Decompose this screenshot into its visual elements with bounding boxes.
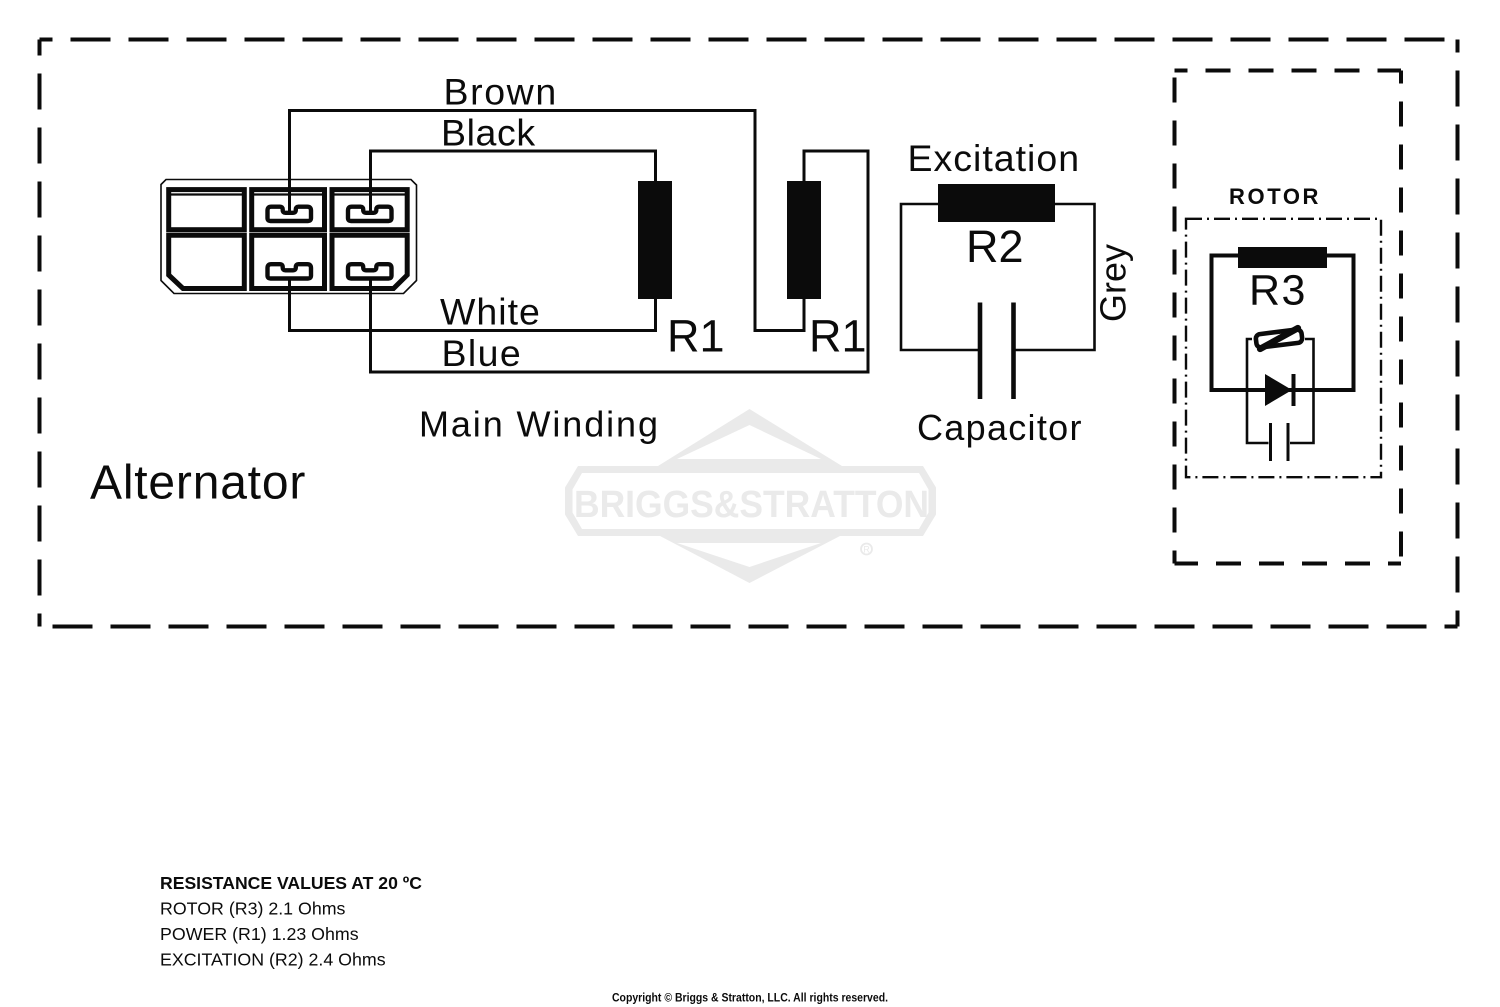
svg-text:Main Winding: Main Winding: [419, 403, 660, 444]
svg-text:Capacitor: Capacitor: [917, 407, 1083, 448]
svg-text:ROTOR (R3) 2.1 Ohms: ROTOR (R3) 2.1 Ohms: [160, 899, 346, 919]
svg-text:R3: R3: [1249, 267, 1307, 315]
svg-text:R1: R1: [667, 311, 725, 362]
svg-text:Alternator: Alternator: [90, 457, 306, 510]
svg-text:ROTOR: ROTOR: [1229, 184, 1321, 209]
svg-text:Grey: Grey: [1093, 244, 1134, 322]
svg-text:BRIGGS&STRATTON: BRIGGS&STRATTON: [574, 484, 929, 526]
svg-text:POWER (R1) 1.23 Ohms: POWER (R1) 1.23 Ohms: [160, 924, 359, 944]
svg-text:Copyright © Briggs & Stratton,: Copyright © Briggs & Stratton, LLC. All …: [612, 993, 888, 1005]
svg-text:Blue: Blue: [442, 332, 523, 374]
svg-text:Black: Black: [441, 112, 536, 154]
svg-text:R1: R1: [809, 311, 867, 362]
svg-text:RESISTANCE VALUES AT 20 ºC: RESISTANCE VALUES AT 20 ºC: [160, 873, 422, 893]
svg-text:R2: R2: [966, 221, 1024, 272]
svg-text:White: White: [440, 290, 541, 332]
svg-text:R: R: [863, 545, 870, 555]
svg-text:EXCITATION (R2) 2.4 Ohms: EXCITATION (R2) 2.4 Ohms: [160, 950, 386, 970]
svg-text:Excitation: Excitation: [908, 137, 1081, 179]
svg-text:Brown: Brown: [444, 71, 558, 113]
